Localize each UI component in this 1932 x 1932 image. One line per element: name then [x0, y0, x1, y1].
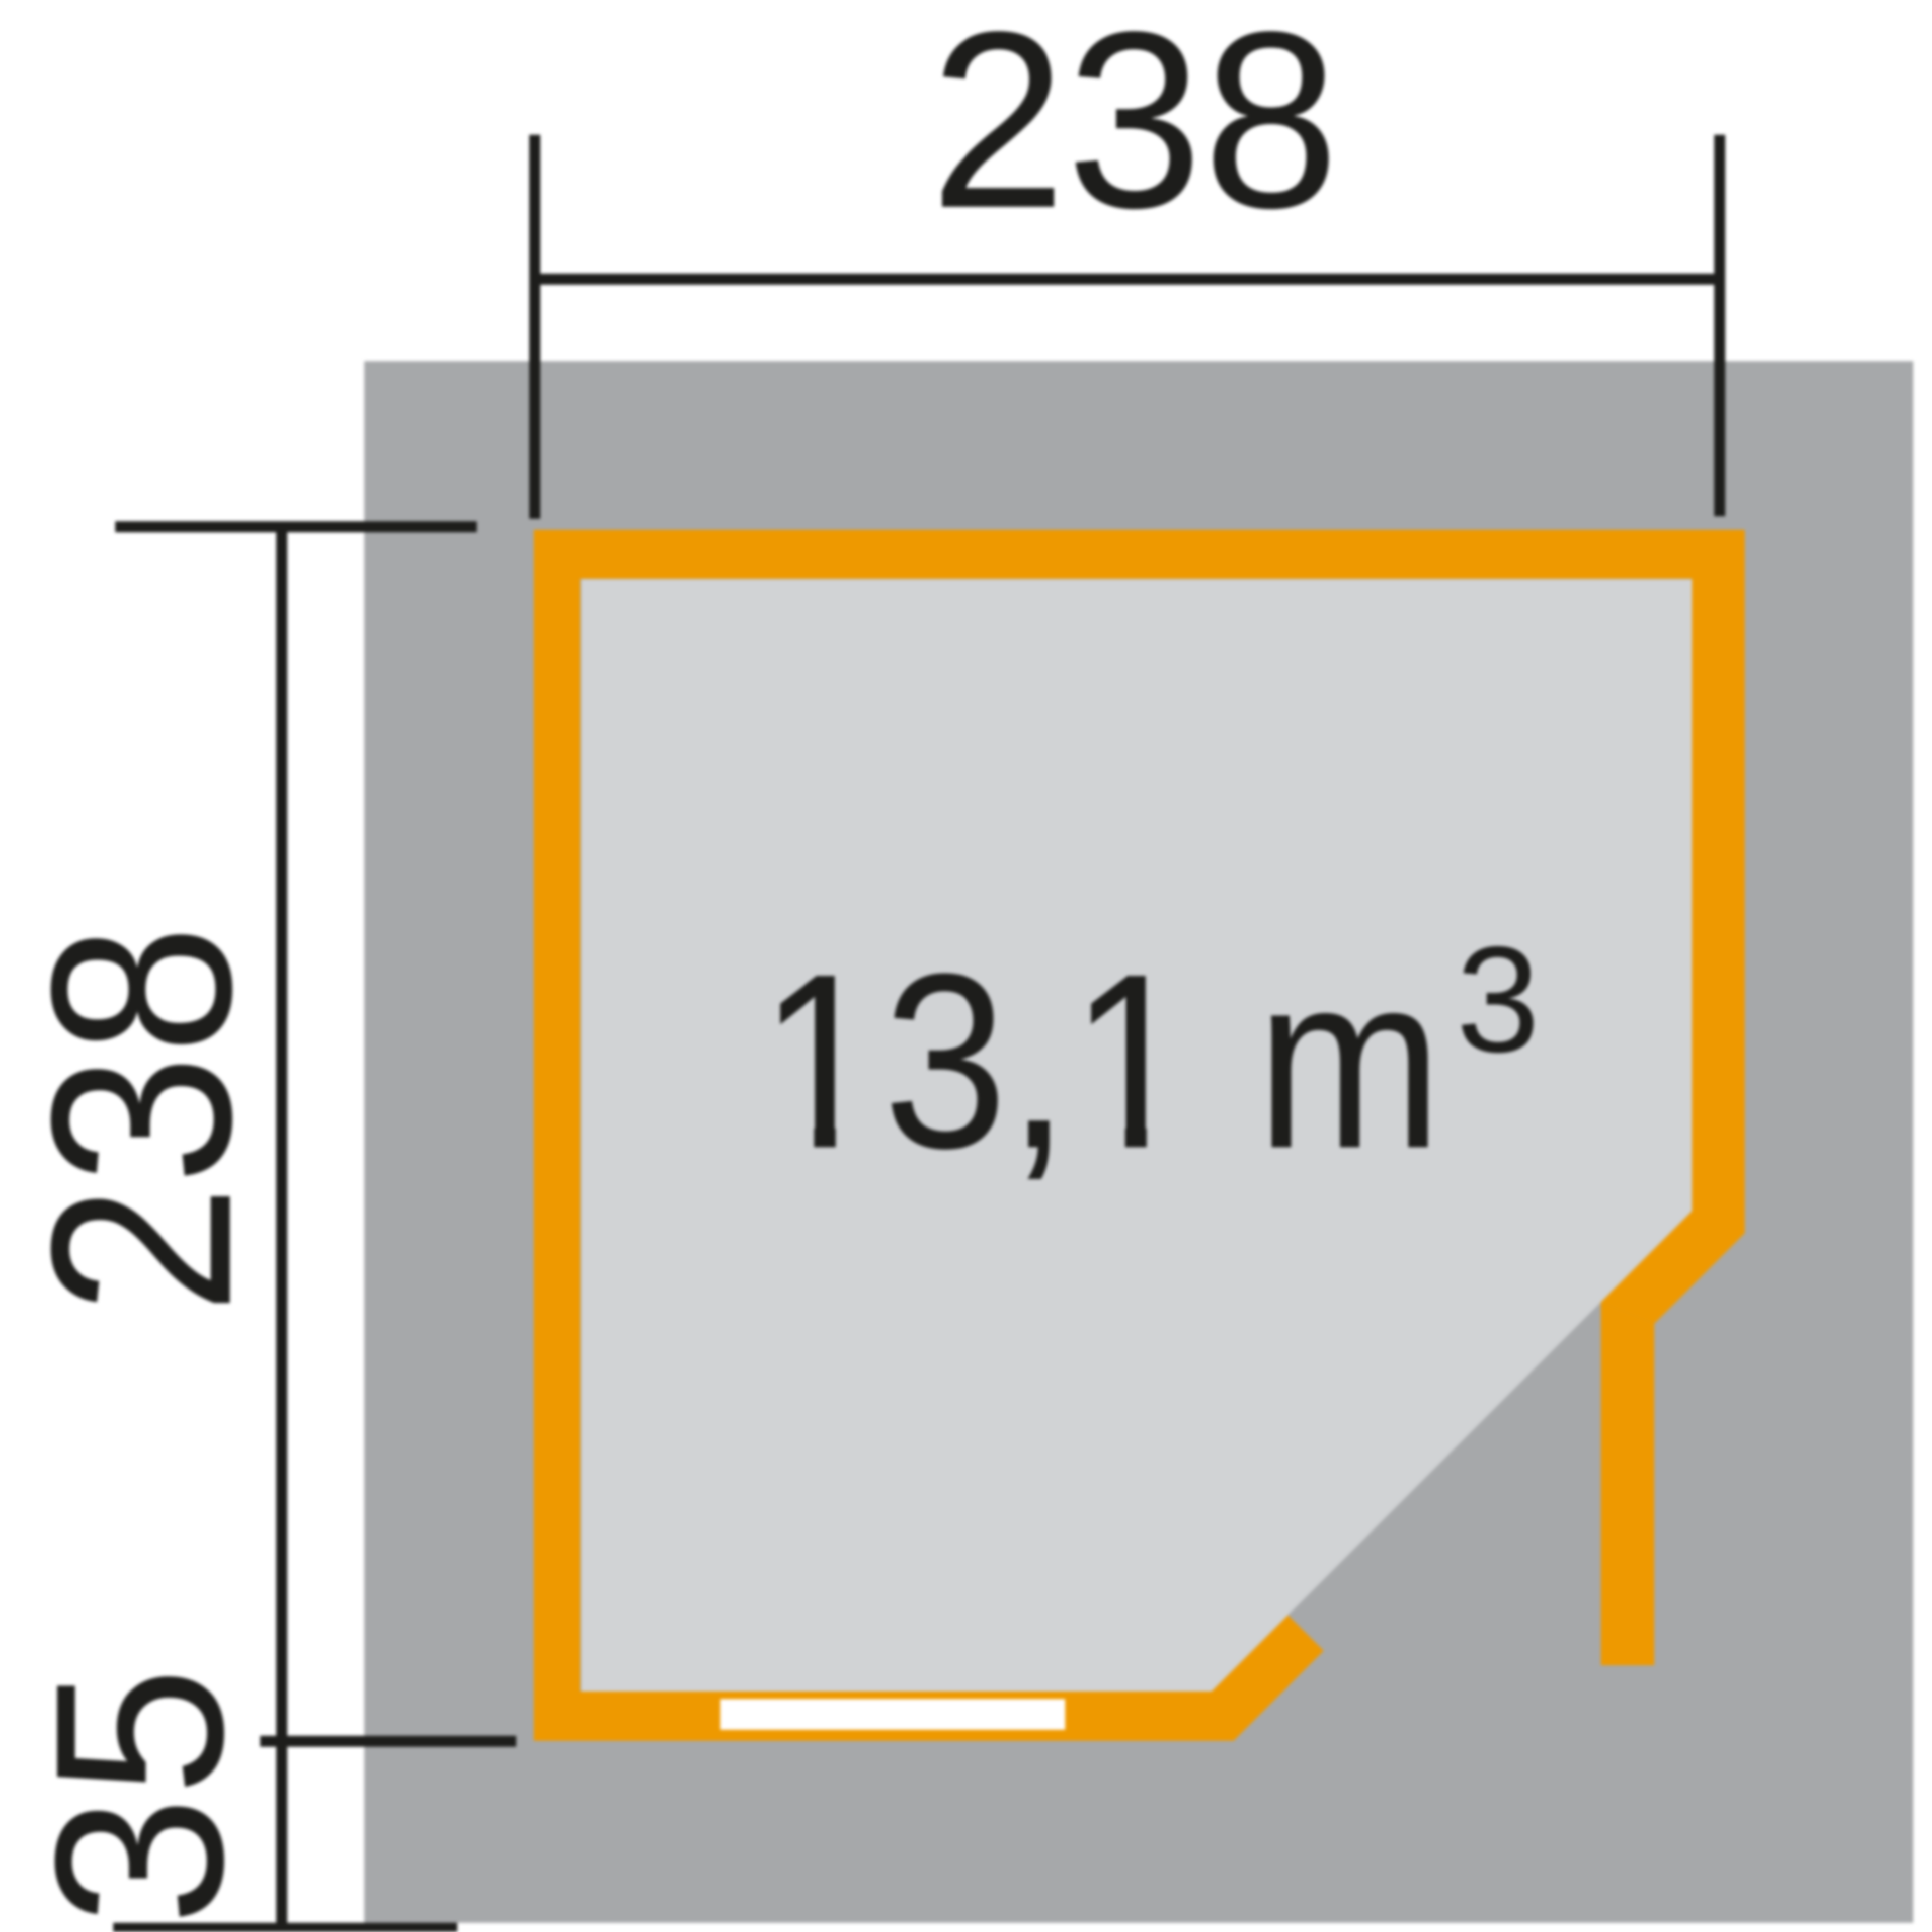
svg-text:35: 35: [5, 1667, 273, 1926]
svg-text:13,1 m: 13,1 m: [759, 922, 1442, 1200]
svg-text:3: 3: [1456, 915, 1540, 1084]
svg-text:238: 238: [0, 924, 285, 1315]
svg-text:238: 238: [930, 0, 1339, 260]
